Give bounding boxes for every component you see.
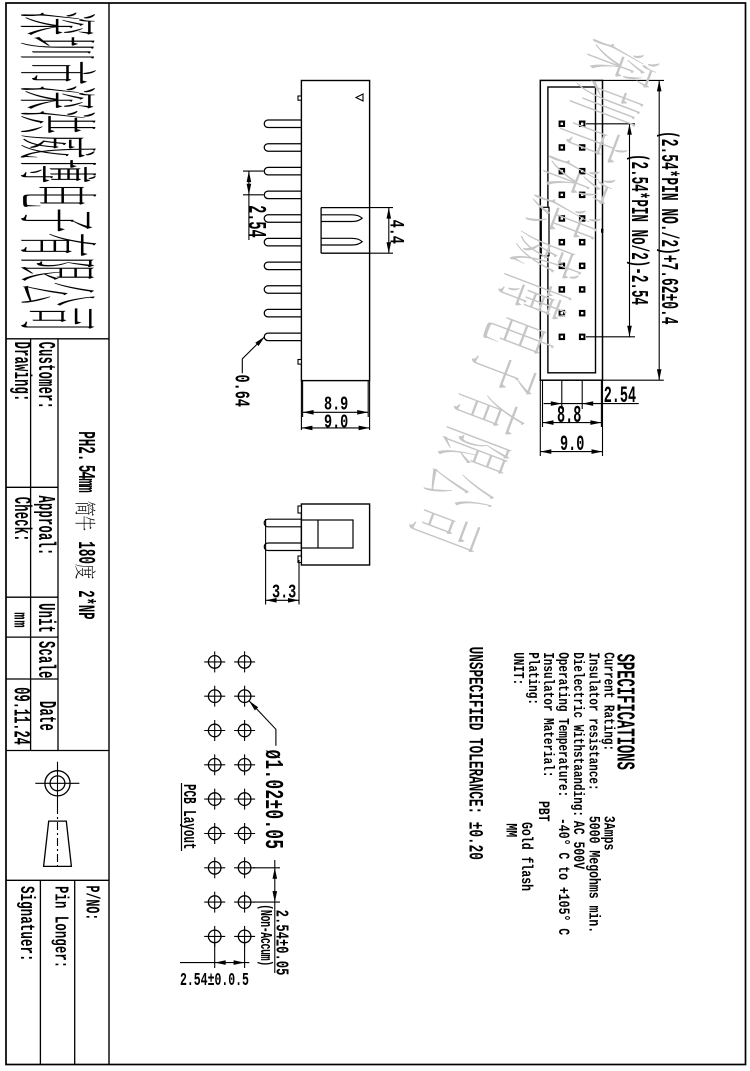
- svg-text:2.54: 2.54: [604, 382, 636, 409]
- svg-text:(2.54*PIN NO./2)+7.62±0.4: (2.54*PIN NO./2)+7.62±0.4: [654, 131, 682, 325]
- svg-text:Pin Longer:: Pin Longer:: [50, 886, 73, 968]
- svg-text:2.54: 2.54: [240, 205, 269, 237]
- svg-text:PBT: PBT: [533, 801, 550, 822]
- svg-text:Date: Date: [32, 701, 60, 731]
- svg-text:4.4: 4.4: [384, 220, 406, 244]
- svg-text:9.0: 9.0: [324, 412, 348, 434]
- svg-text:-40° C to +105° C: -40° C to +105° C: [553, 818, 570, 935]
- svg-text:0.64: 0.64: [228, 375, 252, 408]
- svg-text:Drawing:: Drawing:: [7, 342, 35, 402]
- svg-text:09.11.24: 09.11.24: [7, 687, 32, 745]
- svg-text:(Non-Accum): (Non-Accum): [255, 904, 275, 966]
- svg-text:8.8: 8.8: [557, 402, 581, 429]
- svg-text:2.54±0.0.5: 2.54±0.0.5: [180, 969, 249, 991]
- svg-text:PH2.: PH2.: [71, 431, 99, 461]
- svg-text:2*NP: 2*NP: [71, 590, 97, 619]
- svg-text:ø1.02±0.05: ø1.02±0.05: [258, 750, 287, 850]
- svg-text:MM: MM: [501, 823, 518, 837]
- svg-text:9.0: 9.0: [560, 432, 584, 457]
- svg-text:Unit: Unit: [31, 603, 59, 633]
- svg-text:180: 180: [71, 541, 99, 564]
- svg-text:Scale: Scale: [31, 641, 59, 679]
- svg-text:(2.54*PIN No/2)-2.54: (2.54*PIN No/2)-2.54: [624, 154, 652, 305]
- svg-text:UNSPECIFIED TOLERANCE: ±0.20: UNSPECIFIED TOLERANCE: ±0.20: [462, 647, 485, 860]
- svg-text:UNIT:: UNIT:: [509, 652, 526, 685]
- svg-text:mm: mm: [8, 612, 29, 628]
- svg-text:Gold flash: Gold flash: [516, 822, 533, 891]
- svg-text:P/NO:: P/NO:: [81, 886, 103, 921]
- svg-text:3.3: 3.3: [272, 582, 296, 604]
- svg-text:Signatuer:: Signatuer:: [14, 886, 37, 962]
- svg-text:54mm: 54mm: [71, 465, 99, 493]
- svg-text:Check:: Check:: [7, 497, 35, 542]
